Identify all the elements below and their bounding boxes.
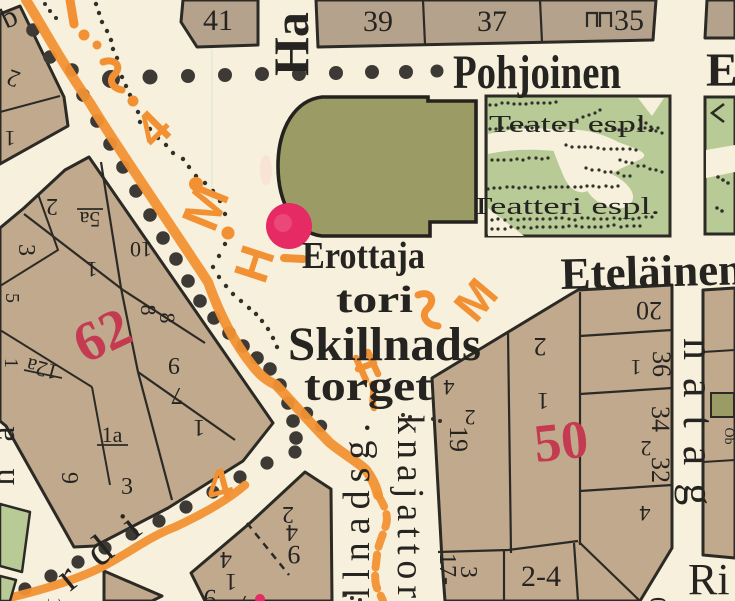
svg-text:Ri: Ri xyxy=(688,555,730,601)
svg-text:Skillnadsg.: Skillnadsg. xyxy=(336,415,378,601)
svg-text:a: a xyxy=(0,426,22,441)
svg-text:knajattorE: knajattorE xyxy=(389,415,431,601)
svg-text:0: 0 xyxy=(644,597,670,601)
svg-text:3: 3 xyxy=(455,566,481,578)
svg-text:1: 1 xyxy=(193,414,205,440)
svg-text:E: E xyxy=(706,44,735,97)
svg-text:Eteläinen: Eteläinen xyxy=(560,244,735,299)
svg-text:2: 2 xyxy=(534,332,547,361)
svg-text:19: 19 xyxy=(444,426,473,452)
svg-text:n: n xyxy=(0,469,22,486)
svg-text:Ha: Ha xyxy=(263,12,319,76)
svg-text:1: 1 xyxy=(225,568,237,594)
svg-text:Pohjoinen: Pohjoinen xyxy=(453,46,621,99)
svg-text:9: 9 xyxy=(56,472,82,484)
svg-text:37: 37 xyxy=(477,5,507,38)
svg-text:9: 9 xyxy=(114,595,126,601)
svg-text:2-4: 2-4 xyxy=(521,560,561,593)
svg-text:3: 3 xyxy=(13,244,39,256)
svg-text:9: 9 xyxy=(288,540,301,569)
svg-text:Teatteri espl.: Teatteri espl. xyxy=(470,194,660,220)
svg-text:1: 1 xyxy=(537,387,549,413)
svg-text:tori: tori xyxy=(336,279,413,321)
svg-text:32: 32 xyxy=(646,457,675,483)
svg-text:4: 4 xyxy=(640,501,651,526)
svg-text:torget: torget xyxy=(304,364,432,410)
svg-text:35: 35 xyxy=(614,4,644,37)
svg-text:34: 34 xyxy=(646,406,675,432)
svg-text:36: 36 xyxy=(647,351,676,377)
svg-text:1a: 1a xyxy=(102,422,123,447)
svg-text:9: 9 xyxy=(168,352,180,378)
svg-text:5a: 5a xyxy=(79,207,100,232)
svg-text:4: 4 xyxy=(444,375,455,400)
svg-text:12: 12 xyxy=(43,597,65,601)
svg-text:39: 39 xyxy=(363,5,393,38)
svg-text:9: 9 xyxy=(204,584,217,601)
svg-text:2: 2 xyxy=(46,193,58,219)
svg-text:41: 41 xyxy=(203,4,233,37)
svg-text:10: 10 xyxy=(130,237,152,262)
svg-text:7: 7 xyxy=(237,590,249,601)
svg-text:5: 5 xyxy=(1,293,23,303)
svg-text:natag: natag xyxy=(674,338,723,523)
svg-text:1: 1 xyxy=(631,355,642,380)
svg-text:Erottaja: Erottaja xyxy=(302,235,425,277)
svg-text:1: 1 xyxy=(0,358,22,368)
svg-text:20: 20 xyxy=(636,296,662,325)
svg-text:1: 1 xyxy=(5,126,16,151)
svg-text:1: 1 xyxy=(87,257,98,282)
svg-text:8: 8 xyxy=(155,313,180,324)
svg-text:50: 50 xyxy=(531,409,591,474)
svg-text:7: 7 xyxy=(171,382,183,408)
svg-text:Teater espl.: Teater espl. xyxy=(489,112,655,138)
